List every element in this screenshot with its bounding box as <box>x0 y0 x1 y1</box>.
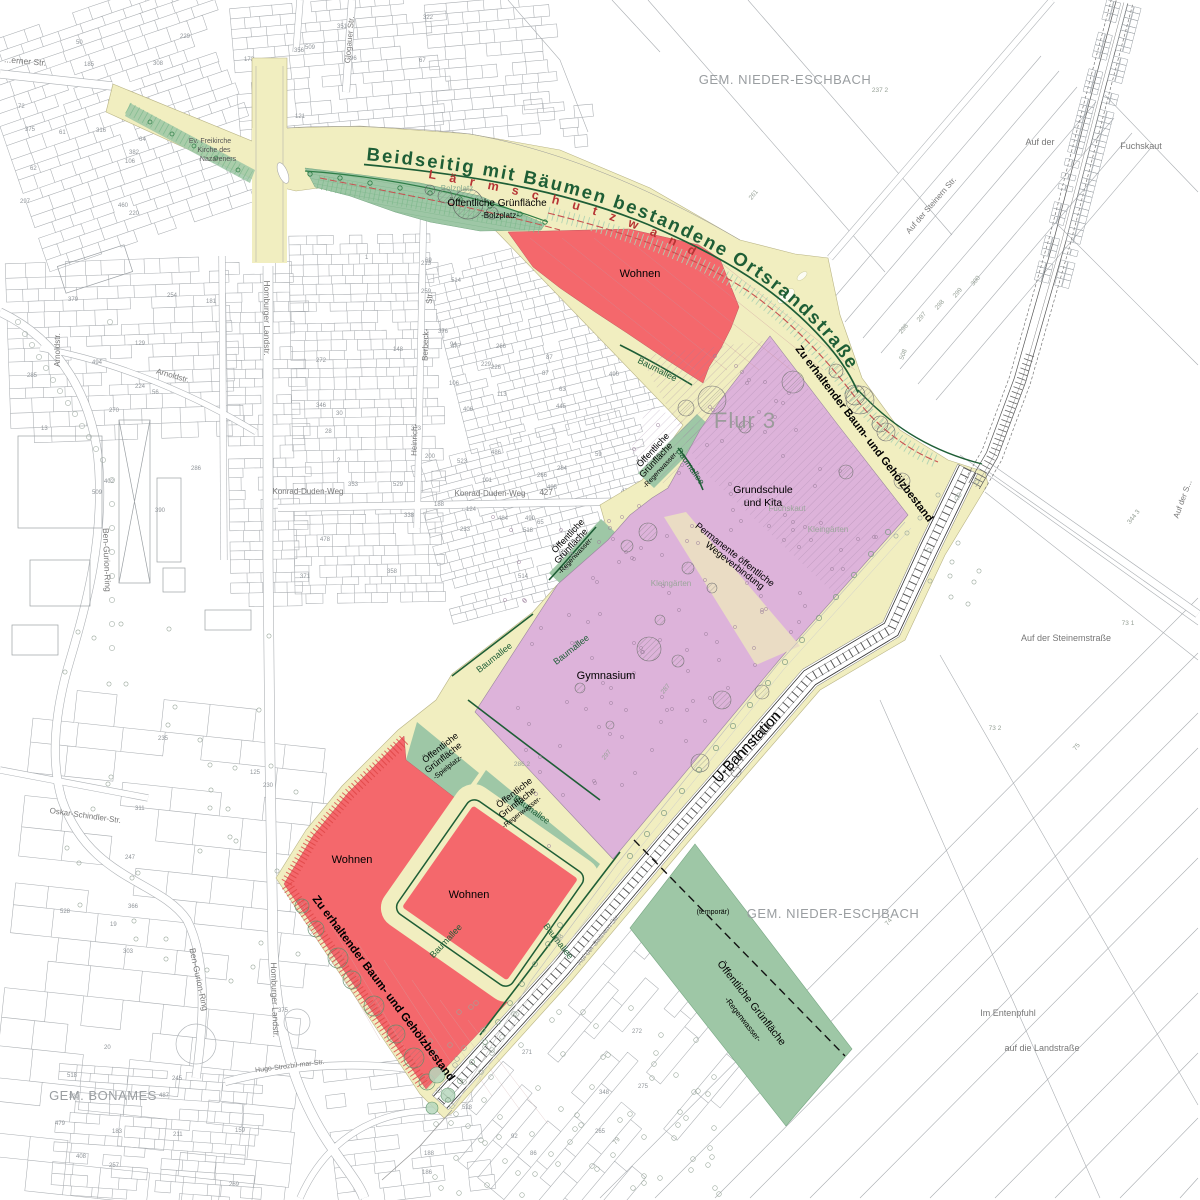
svg-text:Auf der: Auf der <box>1025 137 1054 147</box>
svg-text:445: 445 <box>556 404 567 410</box>
svg-text:59: 59 <box>595 452 602 458</box>
svg-text:13: 13 <box>41 426 48 432</box>
svg-text:Homburger Landstr.: Homburger Landstr. <box>262 280 272 355</box>
svg-text:245: 245 <box>172 1076 183 1082</box>
svg-text:311: 311 <box>135 806 145 812</box>
svg-text:73 1: 73 1 <box>1122 620 1135 627</box>
svg-text:375: 375 <box>25 127 36 133</box>
svg-text:Berbeck-: Berbeck- <box>420 328 430 361</box>
svg-text:Kleingärten: Kleingärten <box>651 579 691 588</box>
svg-text:486: 486 <box>491 450 502 456</box>
svg-text:101: 101 <box>482 478 493 484</box>
svg-text:Kleingärten: Kleingärten <box>808 525 848 534</box>
svg-text:63: 63 <box>559 387 566 393</box>
svg-text:528: 528 <box>60 909 71 915</box>
svg-text:-Bolzplatz-: -Bolzplatz- <box>481 211 519 220</box>
svg-text:230: 230 <box>263 783 274 789</box>
svg-text:65: 65 <box>537 520 544 526</box>
svg-text:Nazareners: Nazareners <box>200 156 237 163</box>
svg-text:Heinrich-: Heinrich- <box>409 423 419 456</box>
svg-text:28: 28 <box>325 429 332 435</box>
svg-text:61: 61 <box>59 130 66 136</box>
svg-text:50: 50 <box>76 40 83 46</box>
svg-text:376: 376 <box>438 329 449 335</box>
svg-text:523: 523 <box>457 459 468 465</box>
svg-text:Grundschule: Grundschule <box>733 484 793 496</box>
svg-text:159: 159 <box>235 1128 246 1134</box>
svg-text:200: 200 <box>425 454 436 460</box>
svg-text:87: 87 <box>542 371 549 377</box>
svg-text:514: 514 <box>518 574 529 580</box>
svg-text:Fuchskaut: Fuchskaut <box>1120 141 1162 151</box>
svg-text:490: 490 <box>525 516 536 522</box>
svg-text:Gymnasium: Gymnasium <box>577 670 636 682</box>
svg-text:30: 30 <box>336 411 343 417</box>
svg-text:518: 518 <box>67 1073 78 1079</box>
svg-text:220: 220 <box>129 211 140 217</box>
svg-text:266: 266 <box>496 344 507 350</box>
svg-text:348: 348 <box>599 1090 610 1096</box>
svg-text:509: 509 <box>305 45 316 51</box>
svg-text:auf die Landstraße: auf die Landstraße <box>1004 1043 1079 1053</box>
svg-text:186: 186 <box>422 1170 433 1176</box>
svg-text:235: 235 <box>158 736 169 742</box>
svg-text:113: 113 <box>497 392 507 398</box>
svg-text:484: 484 <box>498 516 509 522</box>
svg-text:285: 285 <box>27 373 38 379</box>
svg-text:494: 494 <box>92 360 103 366</box>
svg-text:226: 226 <box>491 365 502 371</box>
svg-text:Arnoldstr.: Arnoldstr. <box>53 333 62 367</box>
svg-text:211: 211 <box>173 1132 183 1138</box>
svg-text:Bolzplatz: Bolzplatz <box>441 184 473 193</box>
svg-text:338: 338 <box>404 513 415 519</box>
svg-text:271: 271 <box>522 1050 533 1056</box>
svg-text:183: 183 <box>112 1129 123 1135</box>
svg-text:106: 106 <box>449 381 460 387</box>
svg-text:479: 479 <box>55 1121 66 1127</box>
svg-text:286: 286 <box>191 466 202 472</box>
svg-text:Konrad-Duden-Weg: Konrad-Duden-Weg <box>272 487 343 496</box>
svg-text:316: 316 <box>96 128 107 134</box>
svg-text:86: 86 <box>530 1151 537 1157</box>
svg-text:303: 303 <box>123 949 134 955</box>
svg-text:73 2: 73 2 <box>989 725 1002 732</box>
svg-text:269: 269 <box>229 1182 240 1188</box>
svg-text:286 2: 286 2 <box>514 761 531 768</box>
svg-text:GEM. NIEDER-ESCHBACH: GEM. NIEDER-ESCHBACH <box>747 906 920 921</box>
svg-text:272: 272 <box>632 1029 643 1035</box>
svg-text:Fuchskaut: Fuchskaut <box>769 504 807 513</box>
svg-text:406: 406 <box>463 407 474 413</box>
svg-text:188: 188 <box>424 1151 435 1157</box>
svg-text:224: 224 <box>135 384 146 390</box>
svg-text:358: 358 <box>387 569 398 575</box>
svg-text:379: 379 <box>68 297 79 303</box>
svg-text:(temporär): (temporär) <box>697 909 730 916</box>
svg-text:427: 427 <box>539 488 553 497</box>
svg-text:254: 254 <box>167 293 178 299</box>
svg-text:265: 265 <box>595 1129 606 1135</box>
svg-text:233: 233 <box>460 527 471 533</box>
svg-text:Im Entenpfuhl: Im Entenpfuhl <box>980 1008 1036 1018</box>
svg-text:19: 19 <box>110 922 117 928</box>
svg-text:266: 266 <box>537 473 548 479</box>
svg-text:478: 478 <box>320 537 331 543</box>
svg-text:284: 284 <box>557 466 568 472</box>
svg-text:124: 124 <box>466 507 477 513</box>
svg-text:Ev. Freikirche: Ev. Freikirche <box>189 138 231 145</box>
svg-text:106: 106 <box>125 159 136 165</box>
svg-text:213: 213 <box>421 261 432 267</box>
svg-text:247: 247 <box>125 855 136 861</box>
svg-text:529: 529 <box>393 482 404 488</box>
svg-text:518: 518 <box>523 528 534 534</box>
svg-text:Wohnen: Wohnen <box>620 268 661 280</box>
svg-text:322: 322 <box>423 15 434 21</box>
svg-text:GEM. NIEDER-ESCHBACH: GEM. NIEDER-ESCHBACH <box>699 72 872 87</box>
svg-text:270: 270 <box>109 408 120 414</box>
svg-text:237 2: 237 2 <box>872 87 889 94</box>
svg-text:GEM. BONAMES: GEM. BONAMES <box>49 1088 157 1103</box>
svg-text:Kirche des: Kirche des <box>197 147 231 154</box>
svg-text:490: 490 <box>609 372 620 378</box>
svg-text:Öffentliche Grünfläche: Öffentliche Grünfläche <box>447 197 547 209</box>
svg-text:Wohnen: Wohnen <box>449 889 490 901</box>
svg-text:509: 509 <box>92 490 103 496</box>
svg-text:Wohnen: Wohnen <box>332 854 373 866</box>
svg-text:308: 308 <box>153 61 164 67</box>
svg-text:Flur 3: Flur 3 <box>714 408 776 433</box>
svg-text:275: 275 <box>638 1084 649 1090</box>
svg-text:129: 129 <box>135 341 146 347</box>
svg-text:72: 72 <box>18 104 25 110</box>
svg-text:20: 20 <box>104 1045 111 1051</box>
svg-text:487: 487 <box>159 1093 170 1099</box>
svg-text:148: 148 <box>393 347 404 353</box>
svg-text:64: 64 <box>139 137 146 143</box>
svg-text:92: 92 <box>511 1134 518 1140</box>
svg-text:257: 257 <box>109 1163 120 1169</box>
svg-text:62: 62 <box>30 166 37 172</box>
svg-text:229: 229 <box>180 34 191 40</box>
svg-text:272: 272 <box>316 358 327 364</box>
svg-text:Konrad-Duden-Weg: Konrad-Duden-Weg <box>454 489 525 498</box>
svg-text:67: 67 <box>419 58 426 64</box>
svg-text:56: 56 <box>152 390 159 396</box>
svg-text:Str.: Str. <box>425 292 434 304</box>
svg-text:366: 366 <box>128 904 139 910</box>
svg-text:188: 188 <box>434 502 445 508</box>
svg-text:181: 181 <box>206 299 217 305</box>
svg-text:87: 87 <box>546 355 553 361</box>
svg-text:477: 477 <box>451 344 462 350</box>
svg-text:514: 514 <box>451 278 462 284</box>
svg-text:371: 371 <box>300 574 311 580</box>
svg-text:356: 356 <box>294 48 305 54</box>
svg-text:460: 460 <box>118 203 129 209</box>
svg-text:297: 297 <box>20 199 31 205</box>
svg-text:125: 125 <box>250 770 261 776</box>
svg-text:185: 185 <box>84 62 95 68</box>
svg-text:390: 390 <box>155 508 166 514</box>
svg-text:121: 121 <box>295 114 306 120</box>
svg-text:408: 408 <box>76 1154 87 1160</box>
svg-text:382: 382 <box>129 150 140 156</box>
svg-text:346: 346 <box>316 403 327 409</box>
svg-text:353: 353 <box>348 482 359 488</box>
svg-text:Auf der Steinemstraße: Auf der Steinemstraße <box>1021 633 1111 643</box>
